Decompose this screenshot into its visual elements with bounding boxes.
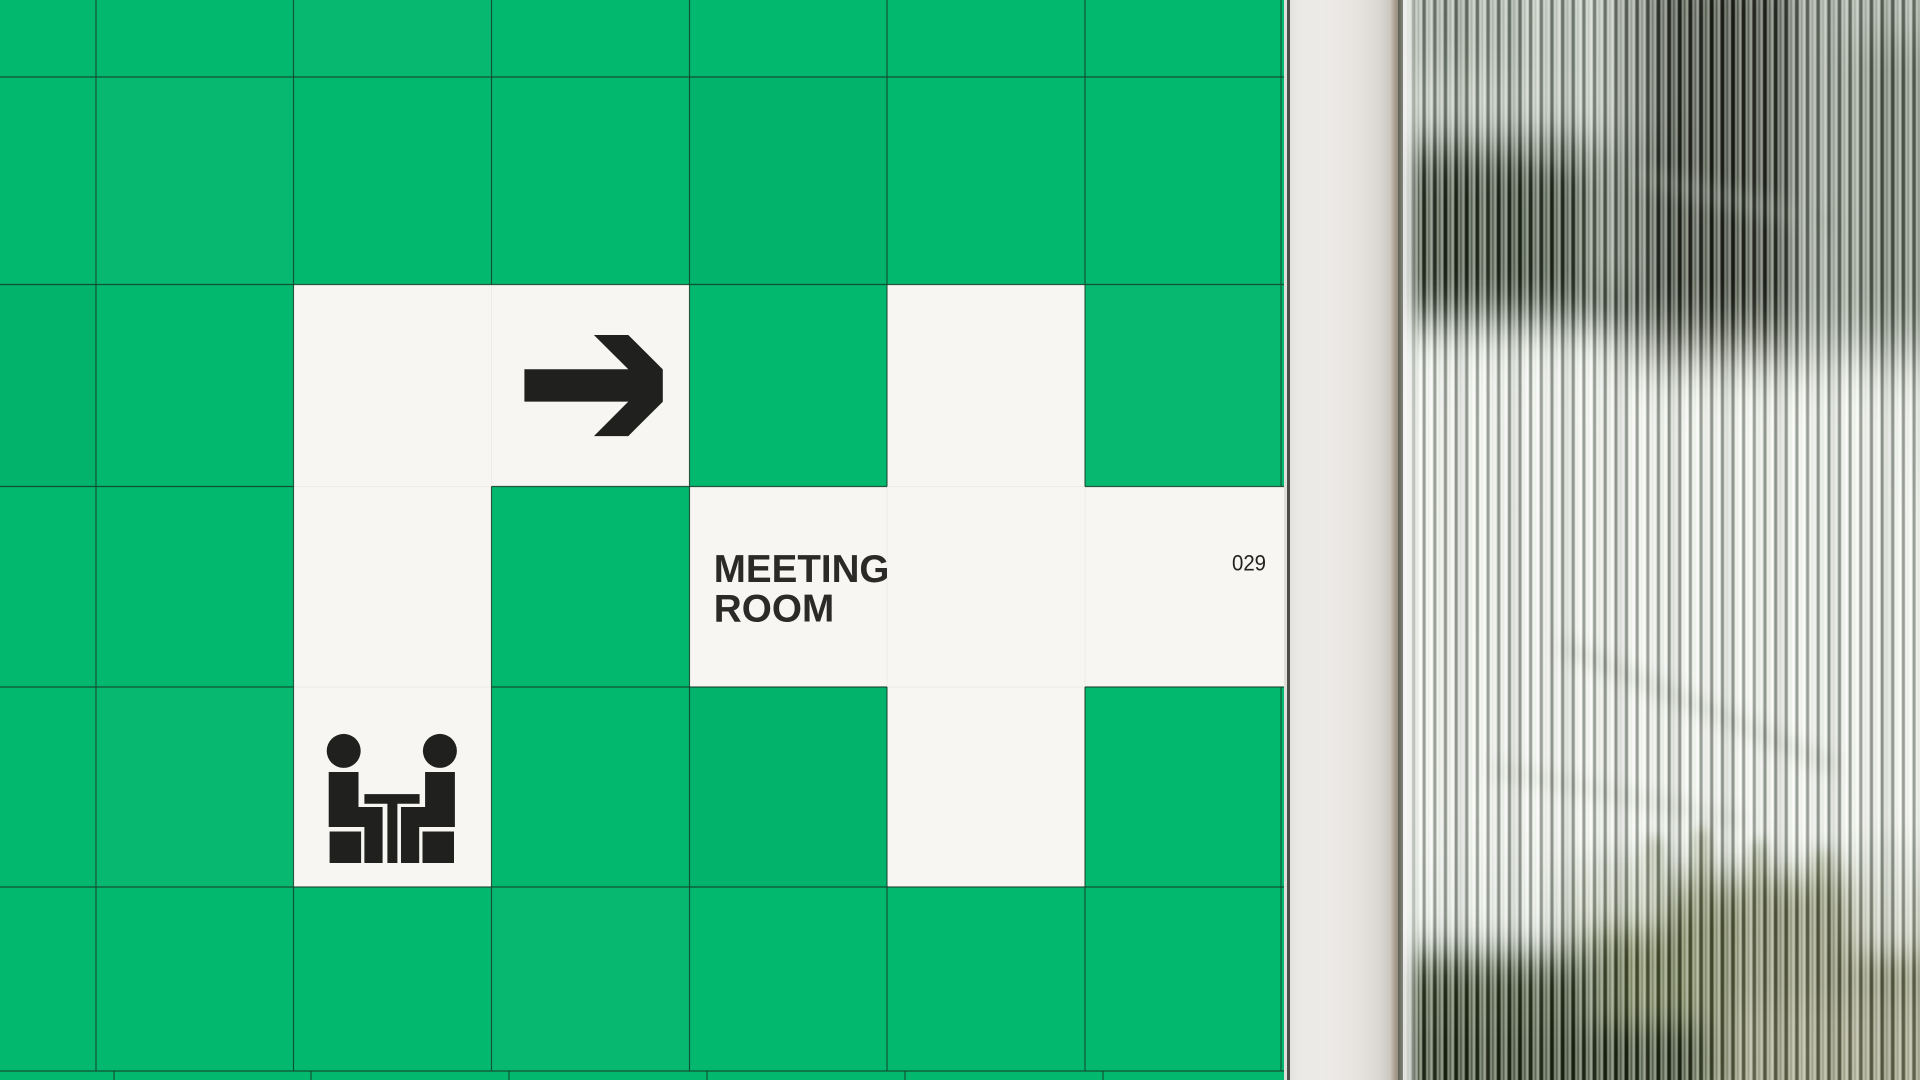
svg-text:MEETING: MEETING	[714, 547, 890, 591]
svg-text:ROOM: ROOM	[714, 587, 834, 631]
svg-text:029: 029	[1232, 550, 1266, 575]
